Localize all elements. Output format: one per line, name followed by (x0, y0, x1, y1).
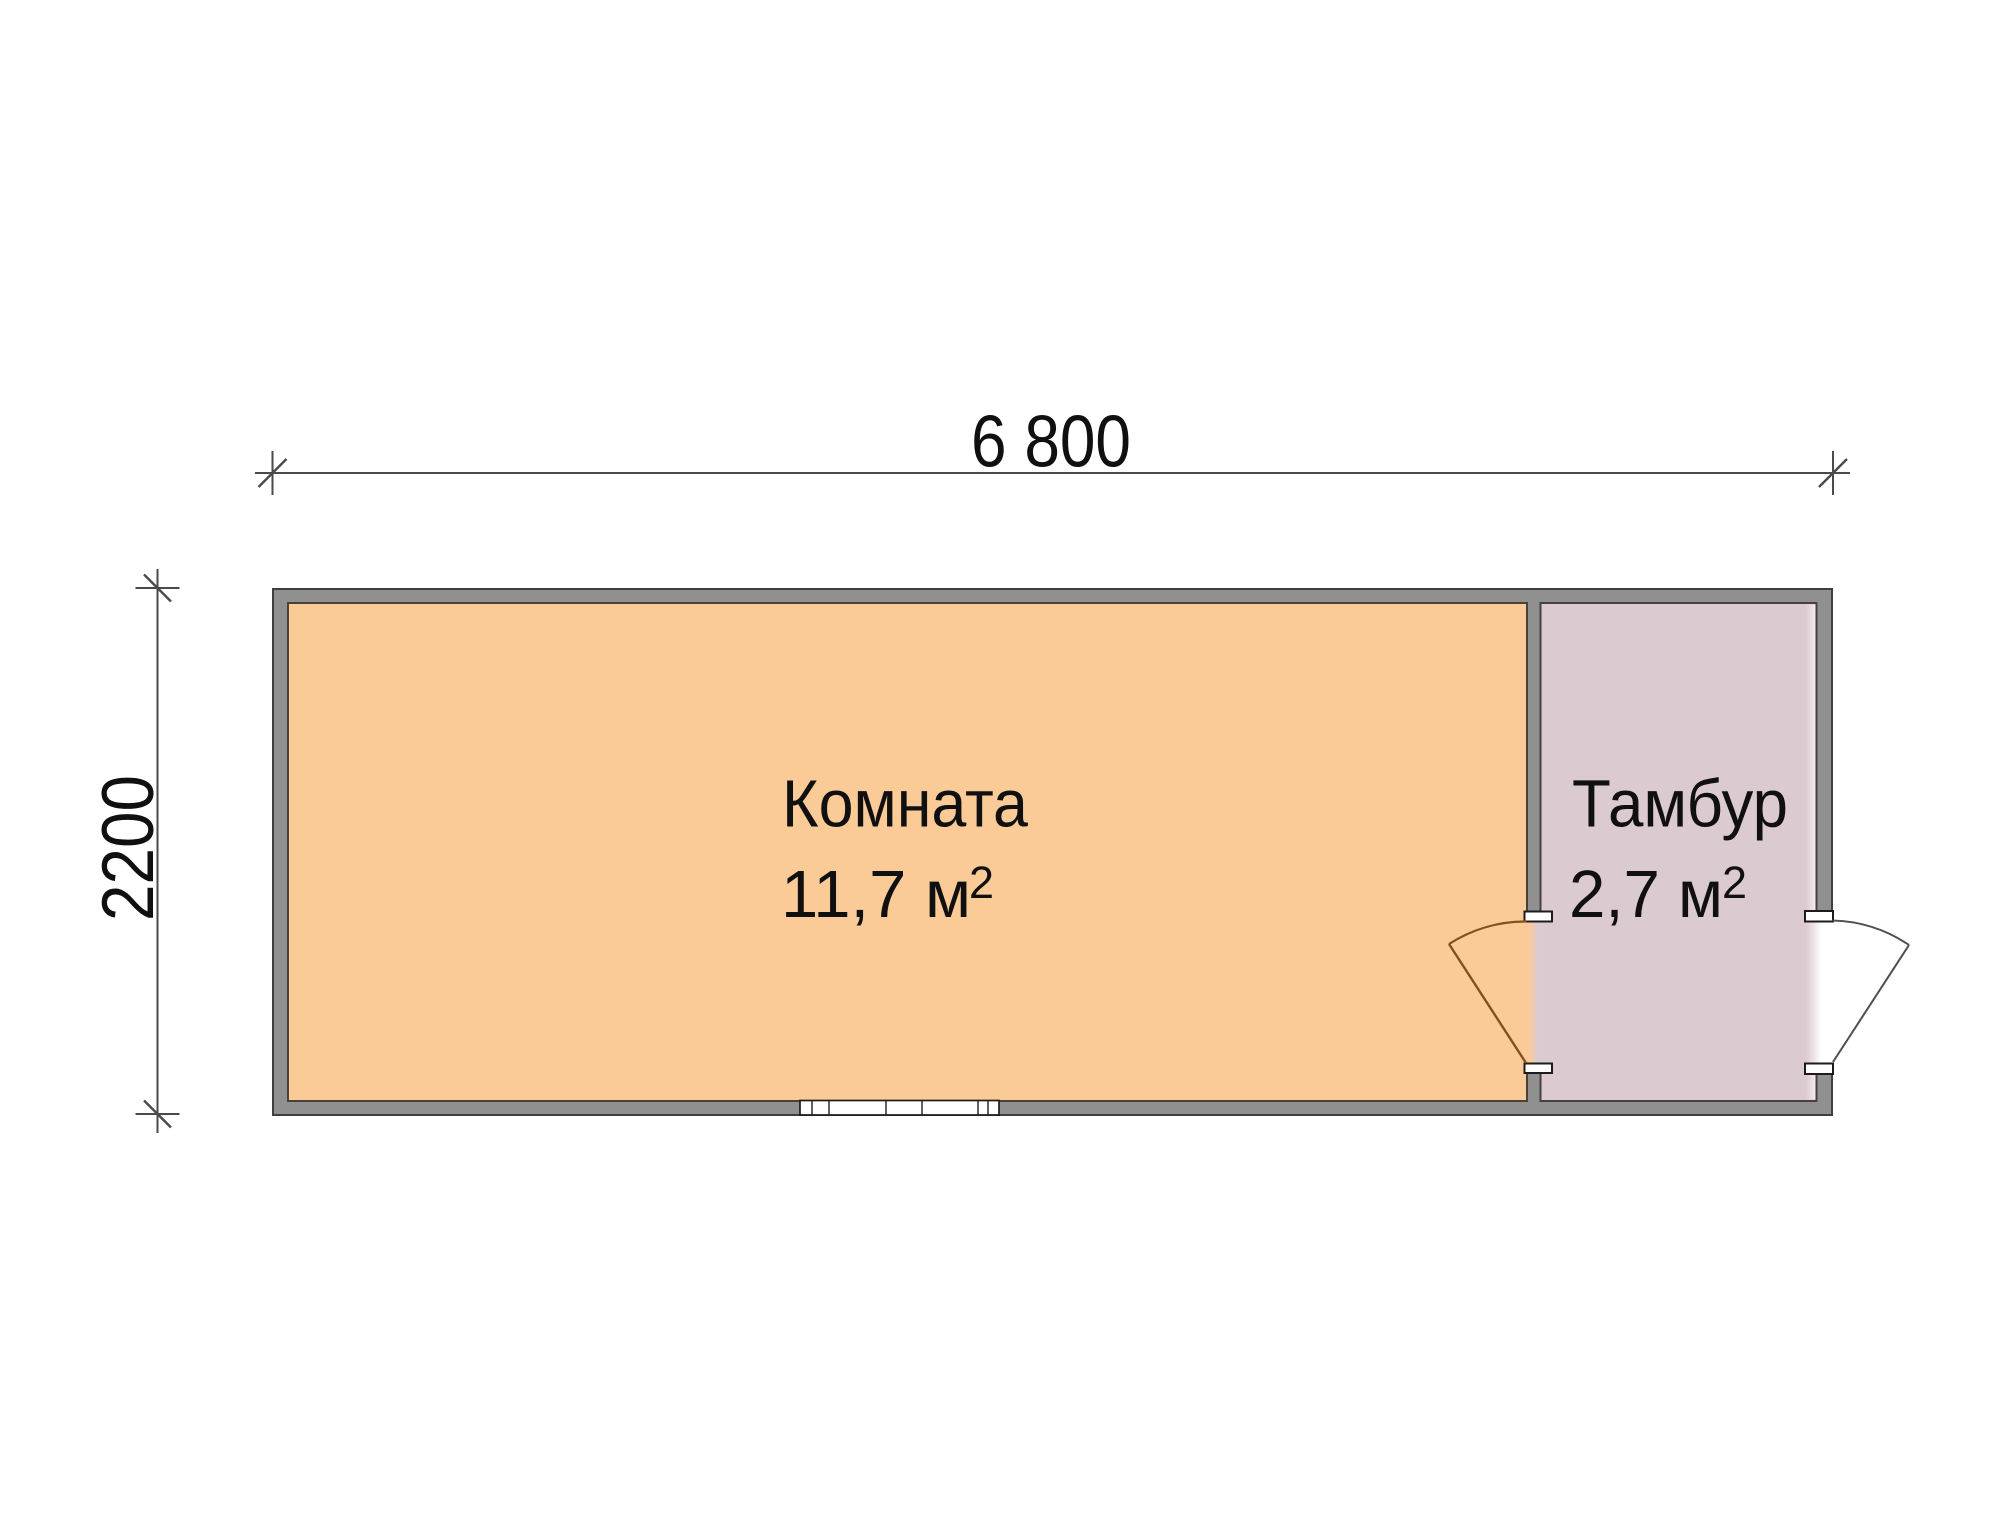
svg-text:Тамбур: Тамбур (1572, 767, 1788, 842)
svg-text:2: 2 (969, 857, 994, 908)
svg-text:11,7 м: 11,7 м (781, 857, 971, 932)
svg-text:Комната: Комната (782, 767, 1029, 842)
svg-text:2: 2 (1722, 857, 1747, 908)
svg-text:2200: 2200 (88, 775, 169, 921)
svg-text:2,7 м: 2,7 м (1569, 857, 1723, 932)
svg-text:6 800: 6 800 (971, 402, 1131, 483)
